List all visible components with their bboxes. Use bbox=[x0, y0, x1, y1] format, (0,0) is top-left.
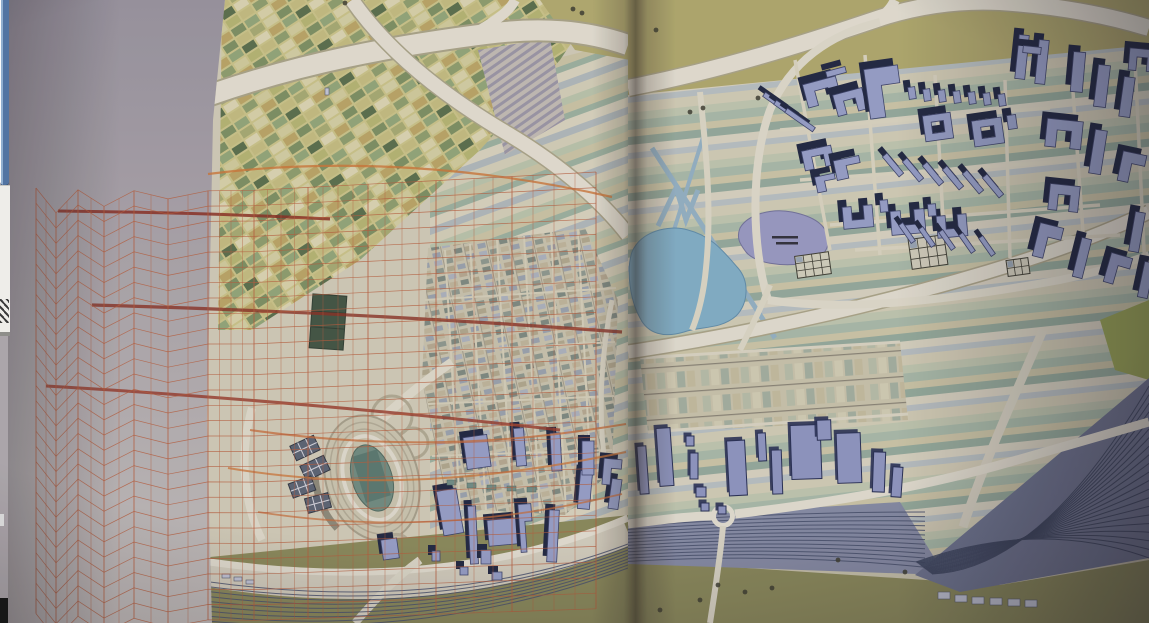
right-page-map bbox=[628, 0, 1149, 623]
masterplan-map-artwork bbox=[0, 0, 1149, 623]
dark-corner-fragment bbox=[0, 598, 8, 623]
book-photo-stage bbox=[0, 0, 1149, 623]
window-fragment-dash bbox=[0, 514, 4, 526]
green-building bbox=[309, 294, 347, 350]
lake-pier bbox=[772, 236, 798, 239]
window-scrollbar-fragment[interactable] bbox=[0, 0, 9, 186]
left-page-edge-shadow bbox=[8, 0, 120, 623]
lake-pier bbox=[776, 242, 798, 245]
book-gutter-shadow bbox=[592, 0, 676, 623]
panel-edge bbox=[0, 332, 10, 336]
zigzag-chart-icon bbox=[0, 299, 9, 323]
